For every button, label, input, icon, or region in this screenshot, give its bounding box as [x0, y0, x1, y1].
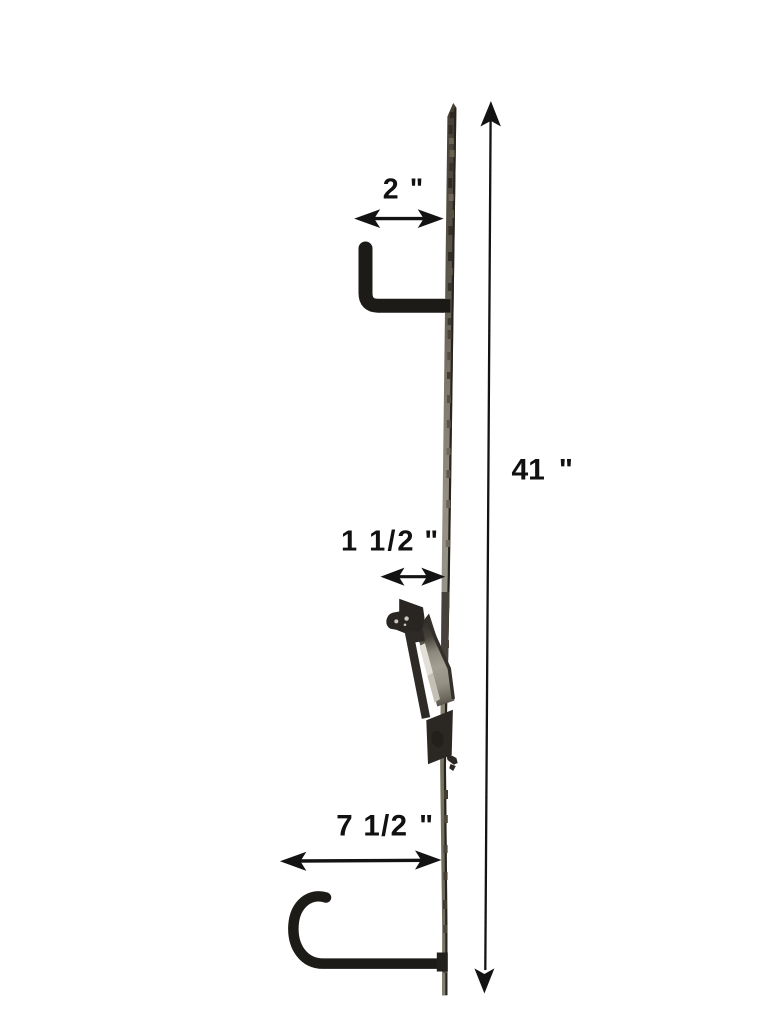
svg-text:": ": [559, 454, 573, 487]
svg-text:": ": [424, 526, 438, 558]
svg-text:1 1/2: 1 1/2: [341, 526, 416, 558]
svg-text:7 1/2: 7 1/2: [336, 810, 408, 843]
svg-text:41: 41: [512, 454, 545, 487]
svg-text:": ": [419, 810, 433, 843]
svg-text:2: 2: [383, 174, 399, 206]
svg-text:": ": [410, 174, 424, 206]
